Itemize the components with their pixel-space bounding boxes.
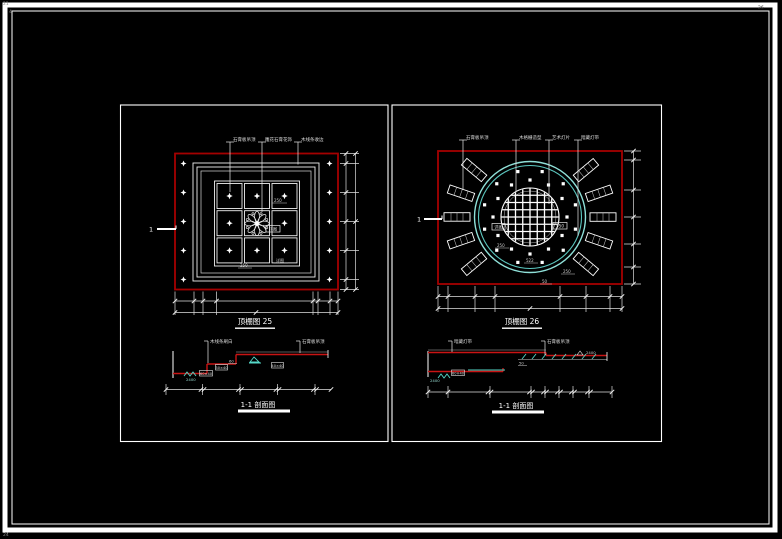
ring-dot [565,215,568,218]
dim-note: 60 [229,359,234,364]
hatch-stroke [572,354,576,359]
boxed-note: 60×40 [452,372,465,376]
dim-note: 250 [497,243,505,248]
louver-line [598,237,601,245]
diamond-marker [181,161,187,167]
leader-label: 木线条刷白 [210,338,233,345]
diamond-marker [254,193,260,199]
ring-dot [547,183,550,186]
louver-line [460,237,463,245]
diamond-marker [226,247,232,253]
corner-mark: 4 [9,9,12,15]
boxed-note: 详图 [494,224,502,231]
leader-label: 暗藏灯带 [454,338,472,345]
rosette-petal [255,211,260,221]
dim-note: 250 [563,269,571,274]
leader-label: 石膏板吊顶 [466,134,489,141]
louver-line [583,167,588,173]
dimension-chain [164,384,333,395]
hatch-stroke [562,354,566,359]
corner-mark: 24 [3,532,9,538]
ring-dot [491,215,494,218]
drawing-title: 顶棚图 26 [505,316,540,326]
section-detail-b: 2400 2400 暗藏灯带 石膏板吊顶 60×40 50 1-1 剖面图 [426,338,614,414]
louver-line [471,261,476,267]
ring-dot [510,247,513,250]
louver [461,158,486,181]
louver-line [467,265,472,271]
dim-note: 250 [240,263,248,268]
title-underline [235,328,275,329]
ring-dot [541,170,544,173]
corner-mark: 26 [758,5,764,11]
diamond-marker [327,190,333,196]
diamond-marker [181,190,187,196]
ring-dot [495,249,498,252]
louver-line [476,257,481,263]
louver-line [460,189,463,197]
dim-note: 50 [519,361,524,366]
ring-dot [574,203,577,206]
boxed-note: 30×40 [215,366,228,370]
ring-dot [547,247,550,250]
leader-lines [226,142,302,212]
diamond-marker [327,161,333,167]
ring-dot [516,261,519,264]
ring-dot [516,170,519,173]
ring-dot [562,249,565,252]
ring-dot [510,183,513,186]
louver [444,213,470,222]
louver-line [476,171,481,177]
diamond-marker [281,220,287,226]
dim-note: 50 [542,279,548,284]
diamond-marker [254,247,260,253]
break-symbol [438,374,450,378]
level-symbol [577,351,583,355]
ring-dot [541,261,544,264]
leader-label: 暗藏灯带 [581,134,599,141]
cyan-hatch [522,354,596,359]
diamond-marker [327,219,333,225]
diamond-marker [181,219,187,225]
detail-note-text: 详图 [269,226,277,233]
section-title: 1-1 剖面图 [499,401,534,410]
louver [573,159,598,182]
level-value: 2400 [586,350,596,355]
level-value: 2400 [430,378,440,383]
louver-line [598,189,601,197]
profile-notes: 60×40 50 [452,361,528,376]
leader-lines [459,140,582,236]
louver-line [583,261,588,267]
ring-dot [495,182,498,185]
ring-dot [574,228,577,231]
louver-line [454,239,457,247]
level-symbol [249,357,261,363]
diamond-marker [226,220,232,226]
dim-note: 250 [274,198,282,203]
hatch-stroke [542,354,546,359]
louver [447,232,474,249]
boxed-note: 40×40 [271,364,284,368]
title-underline [238,410,290,413]
inner-frame [12,11,769,524]
louver [447,185,474,202]
rosette-dot [260,232,262,234]
dim-note: 522 [526,258,534,263]
diamond-marker [181,277,187,283]
louver-line [465,191,468,199]
section-cut-marker: 1 [149,226,176,234]
hatch-stroke [532,354,536,359]
red-profile [173,355,328,374]
dim-note: 详图 [276,257,284,263]
diamond-marker [226,193,232,199]
center-rosette-ornament [245,211,269,235]
leader-label: 雕花石膏花饰 [265,136,292,143]
louver-line [603,239,606,247]
rosette-dot [246,226,248,228]
louver-line [603,187,606,195]
red-profile [428,353,607,372]
section-number: 1 [417,216,421,224]
rosette-dot [252,213,254,215]
leader-label: 石膏板吊顶 [233,136,256,143]
louver [573,252,598,275]
ring-dot [496,197,499,200]
ring-dot [562,182,565,185]
right-panel-border [392,105,662,442]
diamond-marker [281,193,287,199]
diamond-marker [327,248,333,254]
louver-line [465,235,468,243]
rosette-petal [255,225,260,235]
rosette-dot [260,213,262,215]
rosette-dot [252,232,254,234]
cad-sheet[interactable]: 21 4 24 26 石膏板吊顶 雕花石膏花饰 木线条收边 1 [0,0,782,539]
louver [590,213,616,222]
profile-notes: 60×40 30×40 40×40 60 [200,359,285,377]
leader-label: 木格栅造型 [519,134,542,141]
louver-line [454,187,457,195]
title-underline [492,411,544,414]
diamond-marker [281,247,287,253]
louver [585,185,612,202]
louver [461,252,486,275]
level-value: 2400 [186,377,196,382]
ring-dot [496,234,499,237]
diamond-marker [181,248,187,254]
drawing-title: 顶棚图 25 [238,316,273,326]
dimension-chain [426,386,614,398]
title-underline [502,328,542,329]
louver-line [588,163,593,169]
boxed-note: 550 [556,224,564,229]
ring-dot [528,252,531,255]
hatch-stroke [522,354,526,359]
section-title: 1-1 剖面图 [241,400,276,409]
ring-dot [560,234,563,237]
boxed-note: 60×40 [200,372,213,376]
ring-dot [560,197,563,200]
section-detail-a: 木线条刷白 石膏板吊顶 2400 60×40 30×40 40×40 60 1-… [164,338,333,413]
louver-line [471,167,476,173]
left-ceiling-plan: 石膏板吊顶 雕花石膏花饰 木线条收边 1 详图 250 250 详图 顶棚图 2… [149,136,359,329]
louver-line [592,191,595,199]
louver-line [467,163,472,169]
cad-canvas[interactable]: 21 4 24 26 石膏板吊顶 雕花石膏花饰 木线条收边 1 [0,0,782,539]
rosette-dot [246,218,248,220]
leader-label: 石膏板吊顶 [547,338,570,345]
ring-dot [483,203,486,206]
leader-label: 石膏板吊顶 [302,338,325,345]
louver-line [588,265,593,271]
right-ceiling-plan: 石膏板吊顶 木格栅造型 艺术灯片 暗藏灯带 1 详图 550 250 522 2… [417,134,641,329]
hatch-stroke [552,354,556,359]
rosette-petal [245,221,255,226]
louver [585,233,612,250]
leader-label: 木线条收边 [301,136,324,143]
section-number: 1 [149,226,153,234]
ring-dot [483,228,486,231]
louver-line [592,235,595,243]
louver-line [579,257,584,263]
leader-label: 艺术灯片 [552,134,570,141]
ring-dot [528,178,531,181]
dimension-chains [436,149,641,312]
diamond-marker [327,277,333,283]
corner-mark: 21 [3,1,9,7]
rosette-dot [266,218,268,220]
louver-line [579,171,584,177]
